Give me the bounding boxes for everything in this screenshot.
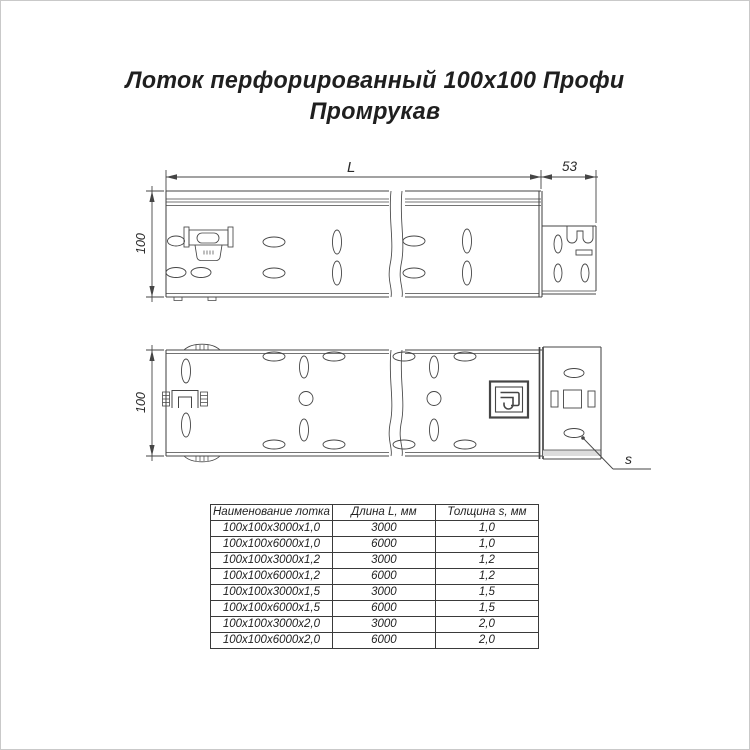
- break-lines-top-view: [389, 191, 403, 297]
- side-elevation-view: [146, 170, 598, 302]
- spec-table: Наименование лотка Длина L, мм Толщина s…: [210, 504, 539, 649]
- dim-label-thickness: s: [625, 451, 632, 467]
- ground-clamp: [184, 227, 233, 261]
- tray-name: 100х100х3000х1,0: [211, 521, 333, 537]
- tray-name: 100х100х6000х1,2: [211, 569, 333, 585]
- table-row: 100х100х3000х1,2 3000 1,2: [211, 553, 539, 569]
- tray-name: 100х100х6000х1,5: [211, 601, 333, 617]
- table-row: 100х100х6000х2,0 6000 2,0: [211, 633, 539, 649]
- tray-thickness: 1,0: [435, 521, 538, 537]
- tray-length: 3000: [332, 617, 435, 633]
- dimension-end-width: [541, 170, 598, 223]
- drawing-sheet: Лоток перфорированный 100х100 Профи Пром…: [0, 0, 750, 750]
- tray-length: 3000: [332, 585, 435, 601]
- end-cap-plan: [543, 347, 601, 459]
- tray-length: 3000: [332, 553, 435, 569]
- spec-table-header-row: Наименование лотка Длина L, мм Толщина s…: [211, 505, 539, 521]
- tray-body-left: [166, 191, 389, 301]
- table-row: 100х100х3000х1,0 3000 1,0: [211, 521, 539, 537]
- tray-length: 6000: [332, 633, 435, 649]
- tray-length: 6000: [332, 601, 435, 617]
- tray-length: 6000: [332, 537, 435, 553]
- tray-body-right: [405, 191, 542, 297]
- table-row: 100х100х6000х1,5 6000 1,5: [211, 601, 539, 617]
- dimension-height-side: [146, 186, 164, 302]
- dim-label-end-width: 53: [562, 159, 578, 174]
- tray-name: 100х100х3000х1,5: [211, 585, 333, 601]
- tray-thickness: 1,2: [435, 569, 538, 585]
- promrukav-logo-stamp: [490, 382, 528, 418]
- dim-label-height-side: 100: [134, 233, 148, 254]
- side-perforations: [166, 229, 472, 285]
- tray-name: 100х100х3000х2,0: [211, 617, 333, 633]
- table-row: 100х100х3000х2,0 3000 2,0: [211, 617, 539, 633]
- tray-name: 100х100х6000х2,0: [211, 633, 333, 649]
- plan-perforations: [182, 352, 477, 449]
- tray-thickness: 1,2: [435, 553, 538, 569]
- tray-thickness: 2,0: [435, 633, 538, 649]
- spec-header-length: Длина L, мм: [332, 505, 435, 521]
- dim-label-height-plan: 100: [134, 392, 148, 413]
- dimension-height-plan: [146, 345, 164, 461]
- end-connector-side: [542, 226, 596, 294]
- dim-label-length: L: [347, 159, 355, 176]
- spec-header-name: Наименование лотка: [211, 505, 333, 521]
- tray-thickness: 1,5: [435, 601, 538, 617]
- table-row: 100х100х6000х1,0 6000 1,0: [211, 537, 539, 553]
- staple-bracket: [163, 391, 208, 409]
- spec-header-thickness: Толщина s, мм: [435, 505, 538, 521]
- plan-view: [146, 344, 651, 469]
- table-row: 100х100х6000х1,2 6000 1,2: [211, 569, 539, 585]
- edge-tabs: [184, 344, 220, 462]
- table-row: 100х100х3000х1,5 3000 1,5: [211, 585, 539, 601]
- tray-thickness: 1,5: [435, 585, 538, 601]
- tray-thickness: 2,0: [435, 617, 538, 633]
- tray-name: 100х100х6000х1,0: [211, 537, 333, 553]
- tray-name: 100х100х3000х1,2: [211, 553, 333, 569]
- tray-length: 6000: [332, 569, 435, 585]
- tray-length: 3000: [332, 521, 435, 537]
- tray-thickness: 1,0: [435, 537, 538, 553]
